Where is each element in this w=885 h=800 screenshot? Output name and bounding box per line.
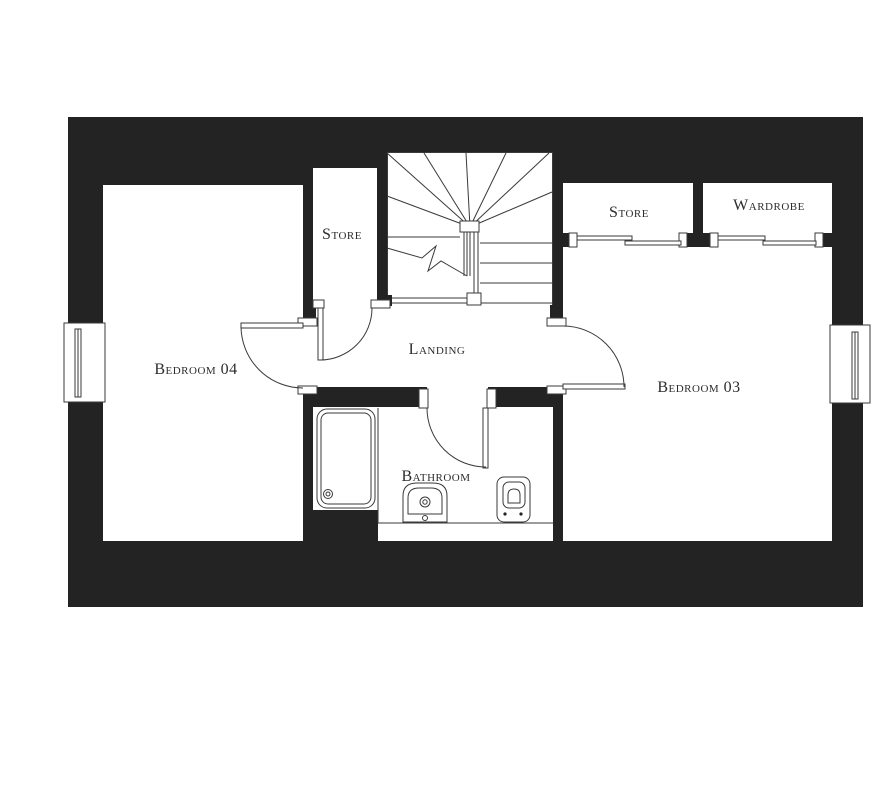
bathtub-icon [317,409,375,508]
room-label-bedroom-04: Bedroom 04 [154,361,237,379]
rail-post [467,293,481,305]
doorway-bedroom-03 [550,326,563,386]
room-label-store-bedroom: Store [609,204,649,222]
sliding-panel [577,236,632,240]
room-label-store-inner: Store [322,226,362,244]
sliding-panel [625,241,681,245]
sliding-panel [718,236,765,240]
door-leaf [318,308,323,360]
floor-plan: Bedroom 04 Bedroom 03 Landing Bathroom S… [0,0,885,800]
door-jamb [547,318,566,326]
door-leaf [483,408,488,468]
doorway-bedroom-04 [303,326,316,386]
washbasin-icon [403,483,447,522]
door-jamb [569,233,577,247]
door-jamb [710,233,718,247]
floor-plan-drawing [0,0,885,800]
room-label-wardrobe: Wardrobe [733,197,805,215]
door-jamb [371,300,390,308]
room-label-bathroom: Bathroom [401,468,470,486]
door-jamb [313,300,324,308]
door-leaf [241,323,303,328]
newel-post [460,221,479,232]
toilet-icon [497,477,530,522]
window-left [64,323,105,402]
door-jamb [298,386,317,394]
door-leaf [563,384,625,389]
window-right [830,325,870,403]
door-jamb [419,389,428,408]
room-label-landing: Landing [409,341,466,359]
room-label-bedroom-03: Bedroom 03 [657,379,740,397]
doorway-bathroom [427,387,488,407]
door-jamb [487,389,496,408]
sliding-panel [763,241,816,245]
